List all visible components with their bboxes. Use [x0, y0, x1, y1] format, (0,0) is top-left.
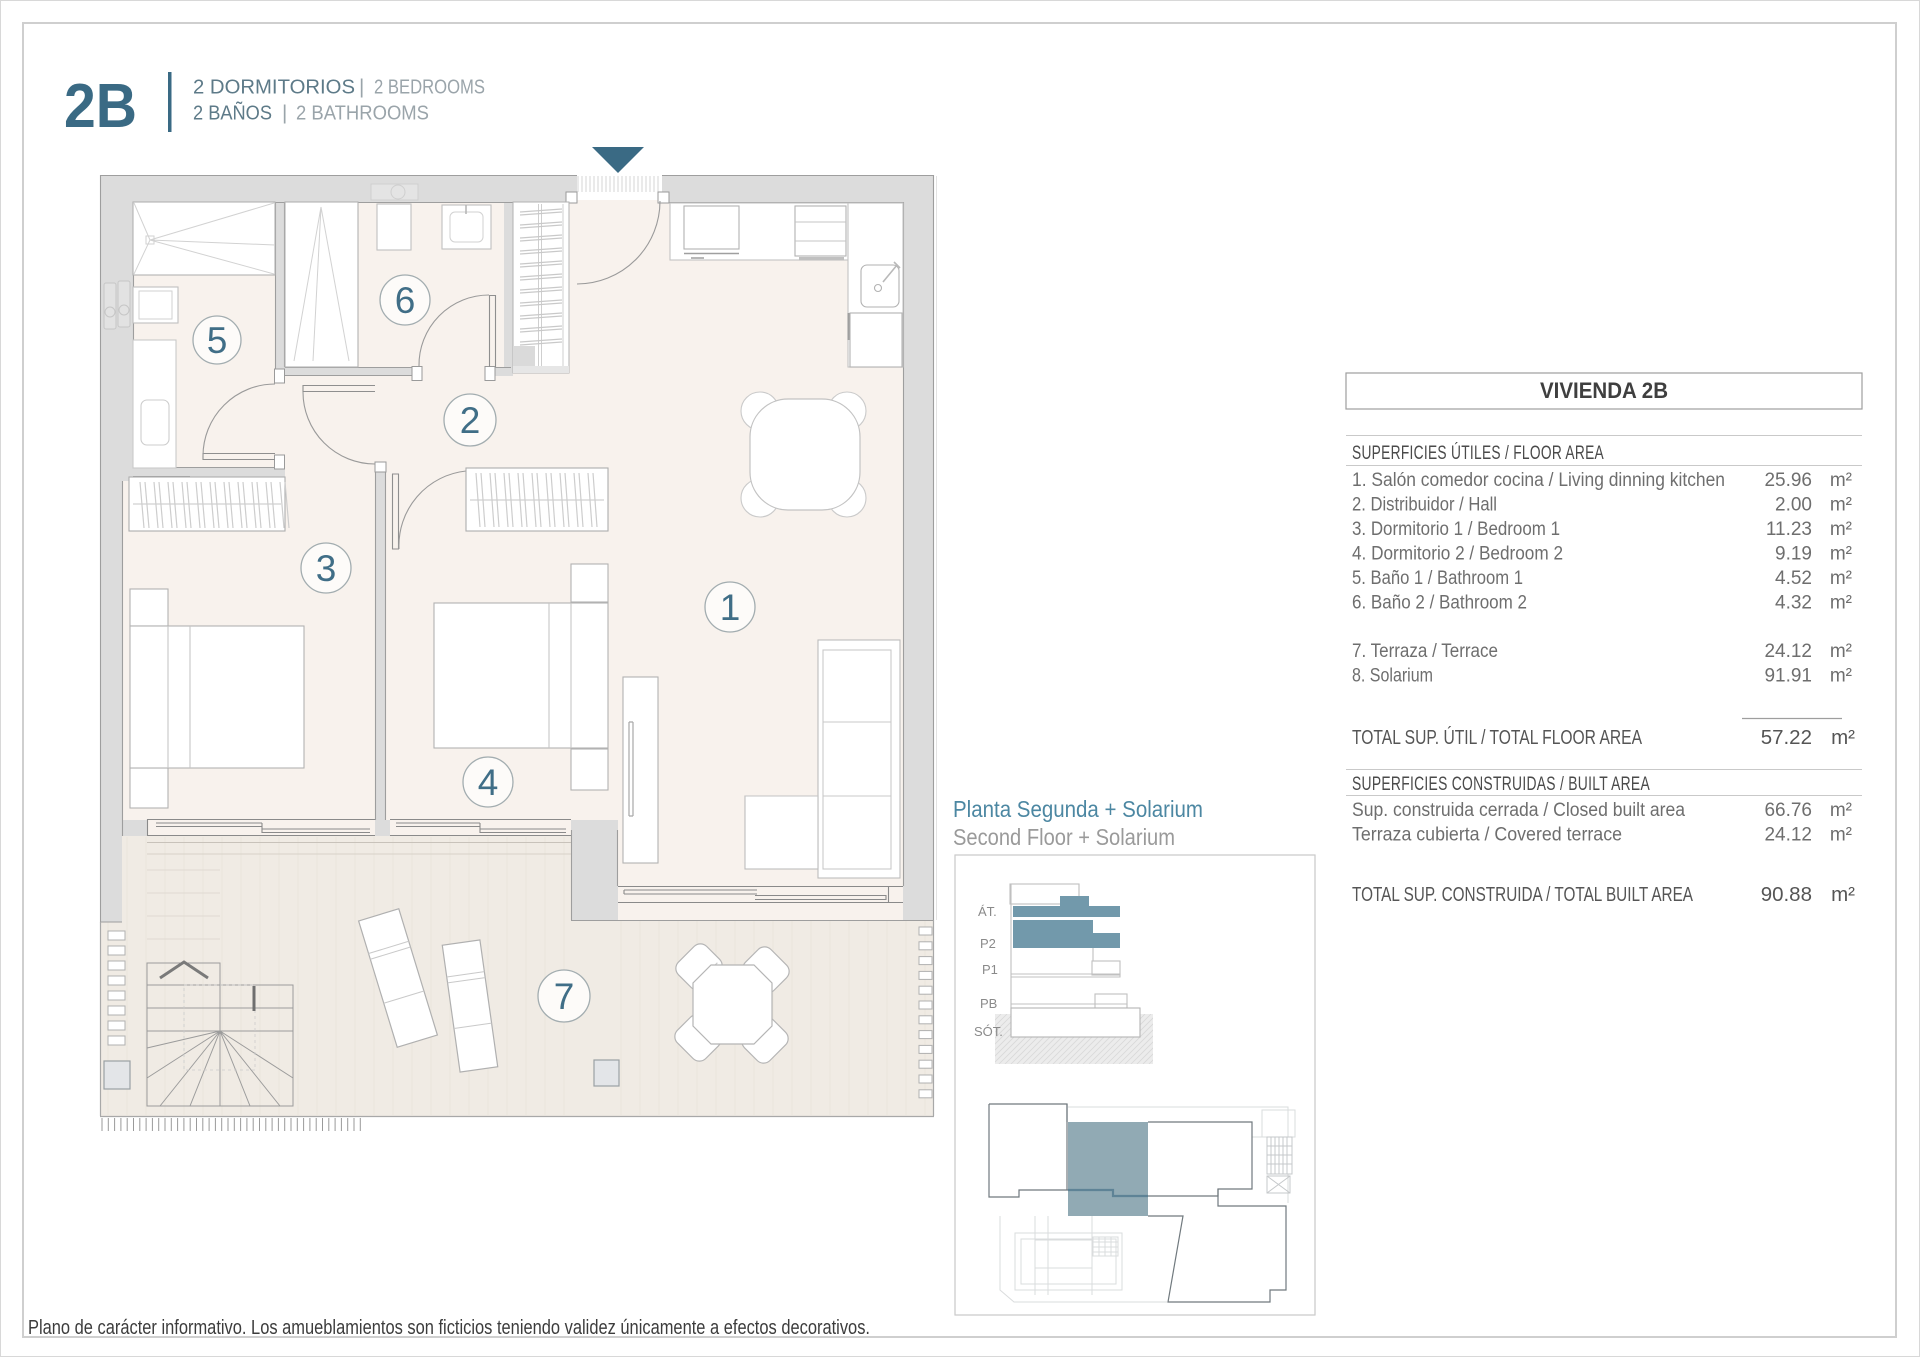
svg-text:1: 1 [720, 587, 741, 628]
svg-text:Plano de carácter informativo.: Plano de carácter informativo. Los amueb… [28, 1317, 870, 1339]
svg-text:5. Baño 1 / Bathroom 1: 5. Baño 1 / Bathroom 1 [1352, 568, 1523, 589]
svg-text:P1: P1 [982, 962, 998, 977]
svg-text:2B: 2B [64, 72, 137, 141]
svg-text:2 BATHROOMS: 2 BATHROOMS [296, 102, 429, 125]
svg-text:SUPERFICIES ÚTILES / FLOOR ARE: SUPERFICIES ÚTILES / FLOOR AREA [1352, 442, 1604, 464]
svg-text:9.19: 9.19 [1775, 544, 1812, 565]
svg-text:2. Distribuidor / Hall: 2. Distribuidor / Hall [1352, 495, 1497, 516]
svg-text:m²: m² [1830, 825, 1852, 846]
svg-text:Terraza cubierta / Covered ter: Terraza cubierta / Covered terrace [1352, 825, 1622, 846]
svg-text:P2: P2 [980, 936, 996, 951]
svg-text:4: 4 [478, 762, 499, 803]
svg-text:11.23: 11.23 [1766, 519, 1812, 540]
svg-text:TOTAL SUP. CONSTRUIDA / TOTAL: TOTAL SUP. CONSTRUIDA / TOTAL BUILT AREA [1352, 883, 1693, 906]
svg-text:Sup. construida cerrada / Clos: Sup. construida cerrada / Closed built a… [1352, 800, 1685, 821]
svg-text:VIVIENDA 2B: VIVIENDA 2B [1540, 378, 1668, 403]
svg-text:m²: m² [1830, 666, 1852, 687]
svg-text:ÁT.: ÁT. [978, 904, 997, 919]
svg-text:Planta Segunda + Solarium: Planta Segunda + Solarium [953, 796, 1203, 822]
svg-text:5: 5 [207, 320, 228, 361]
svg-text:57.22: 57.22 [1761, 726, 1812, 749]
svg-text:7: 7 [554, 976, 575, 1017]
svg-text:TOTAL SUP. ÚTIL / TOTAL FLOOR: TOTAL SUP. ÚTIL / TOTAL FLOOR AREA [1352, 726, 1642, 749]
svg-text:m²: m² [1830, 470, 1852, 491]
svg-text:66.76: 66.76 [1764, 800, 1812, 821]
svg-text:4. Dormitorio 2 / Bedroom 2: 4. Dormitorio 2 / Bedroom 2 [1352, 544, 1563, 565]
svg-text:m²: m² [1830, 519, 1852, 540]
svg-text:Second Floor + Solarium: Second Floor + Solarium [953, 824, 1175, 850]
svg-text:1. Salón comedor cocina / Livi: 1. Salón comedor cocina / Living dinning… [1352, 470, 1725, 491]
svg-text:SÓT.: SÓT. [974, 1024, 1003, 1039]
svg-text:91.91: 91.91 [1764, 666, 1812, 687]
svg-text:m²: m² [1830, 568, 1852, 589]
svg-text:m²: m² [1830, 495, 1852, 516]
svg-text:2 BAÑOS: 2 BAÑOS [193, 102, 272, 125]
svg-text:2 BEDROOMS: 2 BEDROOMS [374, 76, 485, 99]
svg-text:m²: m² [1830, 544, 1852, 565]
svg-text:4.52: 4.52 [1775, 568, 1812, 589]
svg-text:25.96: 25.96 [1764, 470, 1812, 491]
svg-text:|: | [359, 76, 364, 99]
svg-text:m²: m² [1830, 641, 1852, 662]
svg-text:m²: m² [1831, 883, 1855, 906]
svg-text:m²: m² [1830, 593, 1852, 614]
svg-text:m²: m² [1830, 800, 1852, 821]
svg-text:4.32: 4.32 [1775, 593, 1812, 614]
svg-text:6. Baño 2 / Bathroom 2: 6. Baño 2 / Bathroom 2 [1352, 593, 1527, 614]
svg-text:m²: m² [1831, 726, 1855, 749]
svg-text:8. Solarium: 8. Solarium [1352, 666, 1433, 687]
svg-text:PB: PB [980, 996, 997, 1011]
svg-text:3. Dormitorio 1 / Bedroom 1: 3. Dormitorio 1 / Bedroom 1 [1352, 519, 1560, 540]
svg-text:2: 2 [460, 400, 481, 441]
svg-text:2.00: 2.00 [1775, 495, 1812, 516]
svg-text:2 DORMITORIOS: 2 DORMITORIOS [193, 76, 355, 99]
svg-text:24.12: 24.12 [1764, 641, 1812, 662]
svg-text:3: 3 [316, 548, 337, 589]
svg-text:|: | [282, 102, 287, 125]
svg-text:6: 6 [395, 280, 416, 321]
svg-text:7. Terraza / Terrace: 7. Terraza / Terrace [1352, 641, 1498, 662]
svg-text:SUPERFICIES CONSTRUIDAS / BUIL: SUPERFICIES CONSTRUIDAS / BUILT AREA [1352, 774, 1650, 795]
svg-text:24.12: 24.12 [1764, 825, 1812, 846]
svg-text:90.88: 90.88 [1761, 883, 1812, 906]
